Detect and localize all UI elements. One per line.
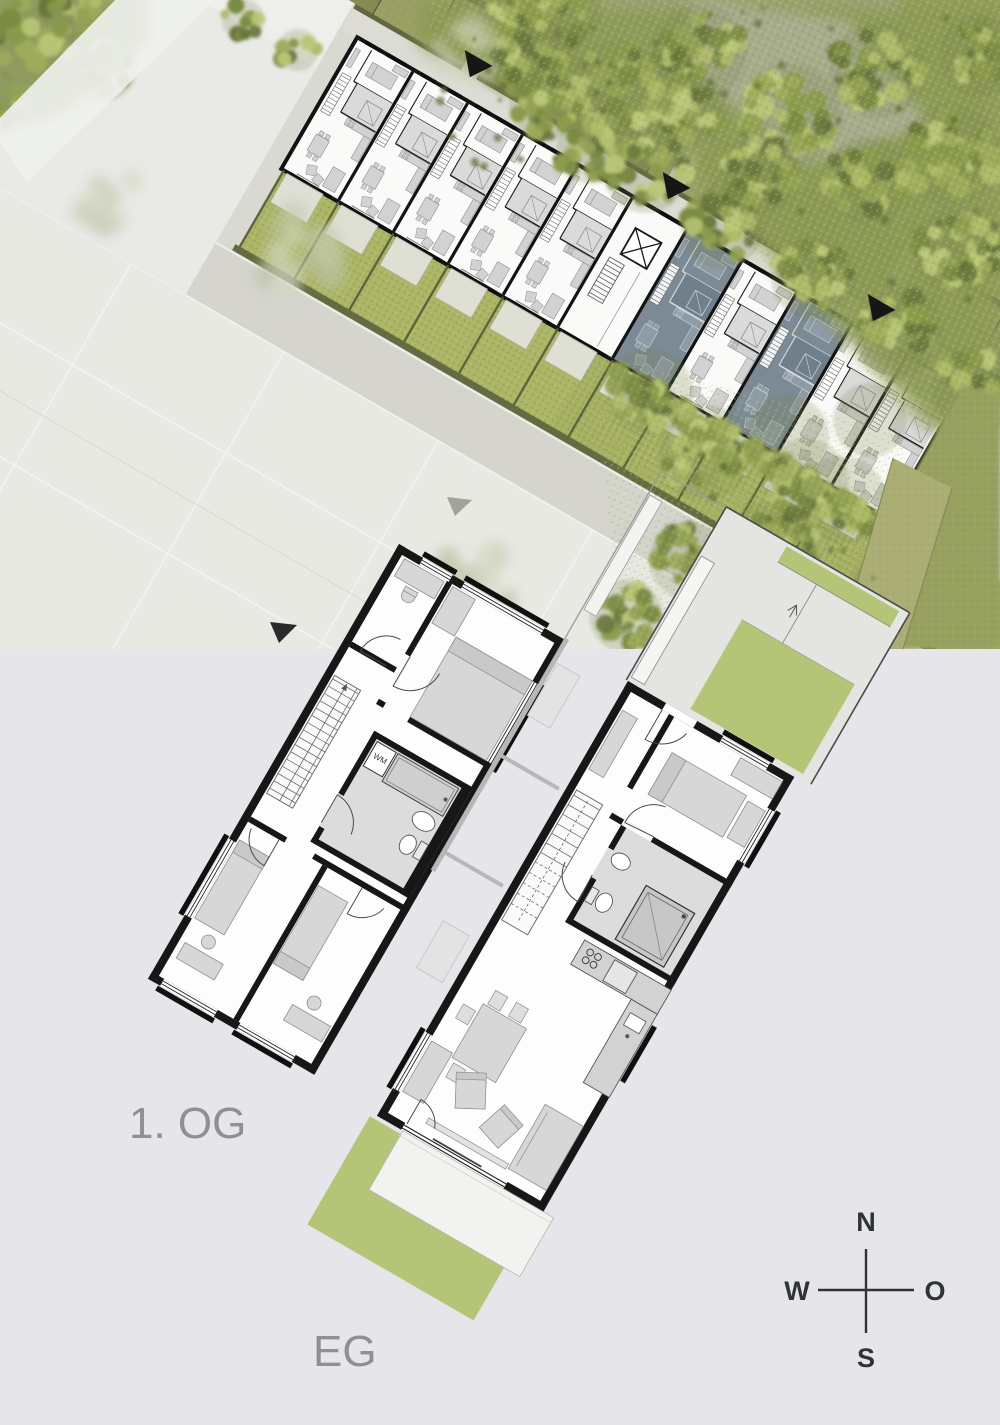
svg-text:W: W [784, 1276, 810, 1306]
svg-text:O: O [924, 1276, 945, 1306]
svg-text:EG: EG [313, 1327, 377, 1376]
svg-text:1. OG: 1. OG [129, 1099, 246, 1148]
svg-text:N: N [856, 1207, 876, 1237]
svg-text:S: S [857, 1343, 875, 1373]
